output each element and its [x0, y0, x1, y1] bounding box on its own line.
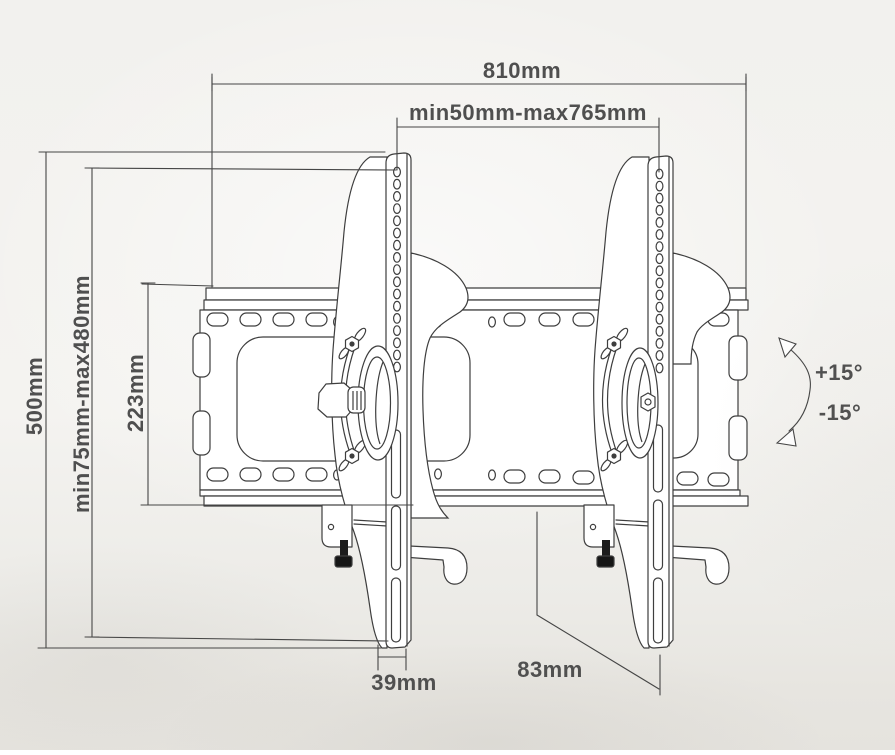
label-overall-height: 500mm: [22, 357, 47, 435]
label-rail-width: 39mm: [371, 670, 437, 695]
label-plate-height: 223mm: [123, 354, 148, 432]
label-tilt-down: -15°: [819, 400, 862, 425]
label-mount-depth: 83mm: [517, 657, 583, 682]
tension-knob: [318, 383, 365, 417]
label-rail-spacing: min50mm-max765mm: [409, 100, 647, 125]
plate-hook-tab: [193, 411, 210, 455]
arrow-up-icon: [779, 338, 796, 357]
rail-holes: [656, 169, 663, 373]
label-overall-width: 810mm: [483, 58, 561, 83]
plate-hook-tab: [193, 333, 210, 377]
photo-of-dimension-diagram: 810mm min50mm-max765mm 500mm min75mm-max…: [0, 0, 895, 750]
tilt-angle-indicator: [777, 338, 810, 446]
dim-39mm: [378, 645, 406, 670]
rail-slots: [392, 430, 401, 642]
label-tilt-up: +15°: [815, 360, 863, 385]
label-vesa-range: min75mm-max480mm: [69, 275, 94, 513]
rail-slots: [654, 425, 663, 643]
wall-mount-diagram: 810mm min50mm-max765mm 500mm min75mm-max…: [0, 0, 895, 750]
plate-hook-tab: [729, 416, 747, 460]
rail-holes: [394, 167, 401, 372]
pivot-bolt: [641, 393, 655, 411]
arrow-down-icon: [777, 429, 796, 446]
plate-hook-tab: [729, 336, 747, 380]
dim-rail-spacing: [397, 118, 659, 172]
